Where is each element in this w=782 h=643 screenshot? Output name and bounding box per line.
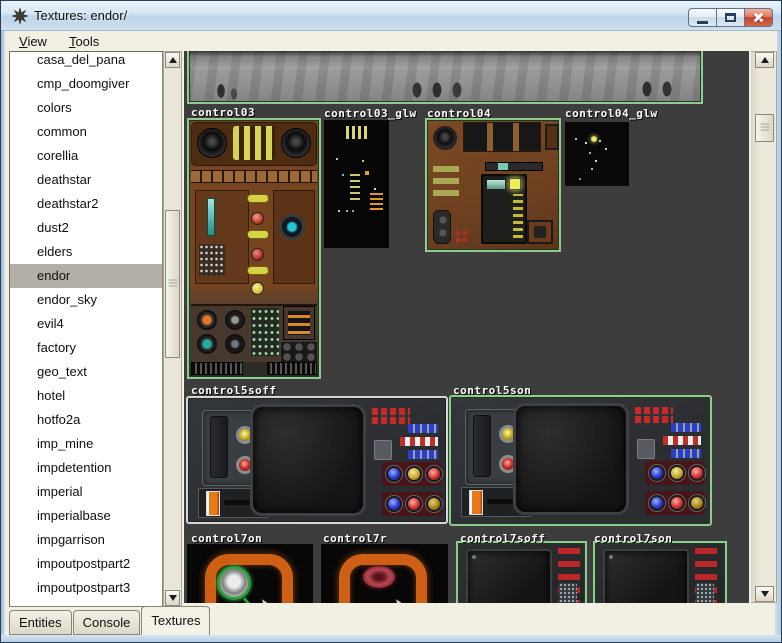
sidebar-item-hotel[interactable]: hotel [10,384,162,408]
texture-art [433,126,457,150]
sidebar-item-endor_sky[interactable]: endor_sky [10,288,162,312]
tab-textures[interactable]: Textures [141,606,210,635]
texture-art [251,248,264,261]
sidebar-item-deathstar2[interactable]: deathstar2 [10,192,162,216]
texture-art [603,549,689,603]
sidebar-item-hotfo2a[interactable]: hotfo2a [10,408,162,432]
texture-scrollbar[interactable] [751,51,777,603]
texture-art [281,342,317,362]
texture-art [206,491,220,516]
texture-art [649,495,665,511]
texture-art [386,496,402,512]
texture-label-control03: control03 [191,106,255,119]
sidebar-listbox: casa_del_panacmp_doomgivercolorscommonco… [9,51,163,607]
title-bar[interactable]: Textures: endor/ [1,1,782,31]
sidebar-scroll-thumb[interactable] [165,210,180,358]
texture-label-control7on: control7on [191,532,262,545]
texture-art [386,466,402,482]
texture-art [575,138,577,140]
sidebar-item-imp_mine[interactable]: imp_mine [10,432,162,456]
tab-entities[interactable]: Entities [9,610,72,635]
texture-art [225,310,245,330]
sidebar-item-endor[interactable]: endor [10,264,162,288]
texture-art [669,465,685,481]
texture-art [426,466,442,482]
texture-tile-control7on[interactable] [187,544,313,603]
texture-art [207,198,215,236]
sidebar-item-corellia[interactable]: corellia [10,144,162,168]
texture-art [671,449,701,458]
texture-art [279,214,305,240]
texture-art [406,466,422,482]
maximize-icon [725,13,736,22]
sidebar-item-casa_del_pana[interactable]: casa_del_pana [10,51,162,72]
texture-canvas[interactable]: control03control03_glwcontrol04control04… [184,51,749,603]
texture-art [513,403,629,515]
texture-tile-control7soff[interactable] [456,541,587,603]
texture-tile-control7r[interactable] [321,544,448,603]
menu-view[interactable]: View [11,32,55,51]
minimize-button[interactable] [688,8,717,27]
texture-art [455,230,469,244]
texture-art [513,194,523,238]
texture-art [197,310,217,330]
texture-art [487,180,505,189]
texture-art [635,407,673,423]
texture-art [350,172,360,200]
arrow-down-icon [169,595,177,601]
close-icon [752,11,765,24]
texture-tile-control7son[interactable] [593,541,727,603]
texture-scroll-thumb[interactable] [755,114,774,142]
window-controls [689,8,773,27]
texture-label-control04: control04 [427,107,491,120]
texture-art [663,436,701,445]
sidebar-item-common[interactable]: common [10,120,162,144]
texture-art [191,170,317,183]
sidebar-item-geo_text[interactable]: geo_text [10,360,162,384]
texture-label-control7son: control7son [594,532,672,545]
tab-bar: EntitiesConsoleTextures [9,605,211,635]
texture-art [433,210,451,244]
textures-window: Textures: endor/ ViewTools casa_del_pana… [0,0,782,643]
texture-art [372,408,410,424]
tab-console[interactable]: Console [73,610,141,635]
texture-art [473,415,491,477]
texture-art [281,128,311,158]
texture-art [199,244,225,276]
window-title: Textures: endor/ [34,8,127,23]
texture-art [250,404,366,516]
texture-scroll-up-button[interactable] [755,52,774,68]
texture-art [509,178,521,190]
sidebar-item-impoutpostpart3[interactable]: impoutpostpart3 [10,576,162,600]
texture-tile-control5son[interactable] [449,395,712,526]
sidebar-item-deathstar[interactable]: deathstar [10,168,162,192]
texture-art [363,566,395,588]
radiant-star-icon [12,8,28,24]
texture-tile-control03[interactable] [187,118,321,379]
texture-art [609,555,613,559]
texture-label-control7r: control7r [323,532,387,545]
texture-scroll-down-button[interactable] [755,586,774,602]
texture-tile-control03_glw[interactable] [324,120,389,248]
texture-art [197,334,217,354]
arrow-up-icon [169,57,177,63]
texture-art [527,220,553,244]
texture-art [591,136,597,142]
texture-art [197,128,227,158]
texture-label-control5son: control5son [453,384,531,397]
texture-art [671,423,701,432]
close-button[interactable] [744,8,773,27]
texture-art [558,547,580,603]
texture-art [225,334,245,354]
sidebar-scrollbar[interactable] [163,51,182,607]
window-border-bottom [1,635,782,642]
texture-art [689,495,705,511]
texture-art [406,496,422,512]
texture-art [247,266,269,275]
texture-tile-control04[interactable] [425,118,561,252]
sidebar-scroll-down-button[interactable] [165,590,180,606]
sidebar-item-imperialbase[interactable]: imperialbase [10,504,162,528]
texture-tile-control5soff[interactable] [186,396,448,524]
texture-art [426,496,442,512]
texture-art [689,465,705,481]
texture-art [336,158,338,160]
texture-tile-strip-top[interactable] [187,51,703,104]
texture-art [247,230,269,239]
texture-art [370,192,383,210]
arrow-down-icon [761,591,769,597]
texture-art [649,465,665,481]
sidebar-item-imperial[interactable]: imperial [10,480,162,504]
texture-art [189,51,701,102]
texture-art [243,362,267,375]
arrow-up-icon [761,57,769,63]
texture-art [346,126,368,139]
texture-tile-control04_glw[interactable] [565,122,629,186]
texture-art [433,164,459,196]
sidebar-item-factory[interactable]: factory [10,336,162,360]
sidebar-item-impgarrison[interactable]: impgarrison [10,528,162,552]
menu-tools[interactable]: Tools [61,32,107,51]
texture-art [669,495,685,511]
sidebar-item-impoutpostpart2[interactable]: impoutpostpart2 [10,552,162,576]
menu-bar: ViewTools [5,31,777,51]
texture-label-control04_glw: control04_glw [565,107,658,120]
sidebar-item-impdetention[interactable]: impdetention [10,456,162,480]
sidebar-item-colors[interactable]: colors [10,96,162,120]
texture-art [408,424,438,433]
texture-art [251,282,264,295]
texture-art [247,194,269,203]
texture-label-control03_glw: control03_glw [324,107,417,120]
texture-art [485,162,543,171]
texture-art [408,450,438,459]
minimize-icon [697,21,708,24]
maximize-button[interactable] [716,8,745,27]
sidebar-item-dust2[interactable]: dust2 [10,216,162,240]
texture-art [400,437,438,446]
texture-art [283,306,315,340]
texture-art [637,439,655,459]
texture-label-control7soff: control7soff [460,532,545,545]
sidebar-item-elders[interactable]: elders [10,240,162,264]
texture-art [217,566,251,600]
texture-art [374,440,392,460]
sidebar-item-cmp_doomgiver[interactable]: cmp_doomgiver [10,72,162,96]
texture-art [233,126,275,160]
texture-art [463,122,541,152]
texture-art [472,555,476,559]
texture-art [466,549,552,603]
texture-art [545,124,559,150]
texture-art [469,490,483,515]
window-border-left [1,31,5,635]
texture-art [210,416,228,478]
sidebar-scroll-up-button[interactable] [165,52,180,68]
texture-art [251,212,264,225]
sidebar-list: casa_del_panacmp_doomgivercolorscommonco… [10,51,162,600]
texture-art [695,547,717,603]
texture-art [251,308,279,356]
sidebar-item-evil4[interactable]: evil4 [10,312,162,336]
texture-label-control5soff: control5soff [191,384,276,397]
